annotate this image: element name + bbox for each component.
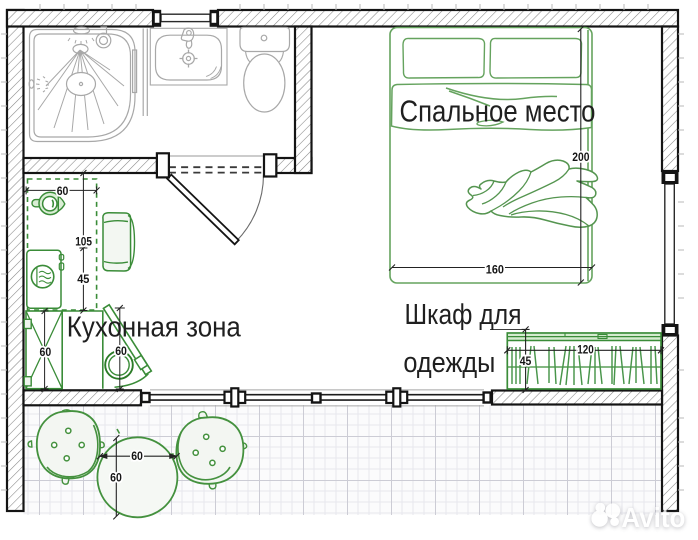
svg-text:60: 60 bbox=[115, 346, 127, 358]
svg-text:45: 45 bbox=[77, 274, 90, 286]
svg-text:одежды: одежды bbox=[403, 347, 495, 379]
svg-text:60: 60 bbox=[40, 347, 52, 359]
svg-text:200: 200 bbox=[572, 152, 589, 164]
svg-text:Avito: Avito bbox=[621, 502, 685, 533]
svg-text:105: 105 bbox=[75, 236, 92, 248]
svg-text:120: 120 bbox=[577, 345, 594, 357]
svg-text:45: 45 bbox=[520, 356, 532, 368]
svg-text:Шкаф для: Шкаф для bbox=[405, 299, 522, 331]
svg-text:60: 60 bbox=[57, 186, 69, 198]
svg-text:Кухонная зона: Кухонная зона bbox=[67, 311, 242, 343]
svg-text:160: 160 bbox=[486, 264, 504, 276]
svg-text:60: 60 bbox=[131, 451, 143, 463]
svg-text:60: 60 bbox=[110, 472, 122, 484]
svg-text:Спальное место: Спальное место bbox=[400, 95, 596, 129]
